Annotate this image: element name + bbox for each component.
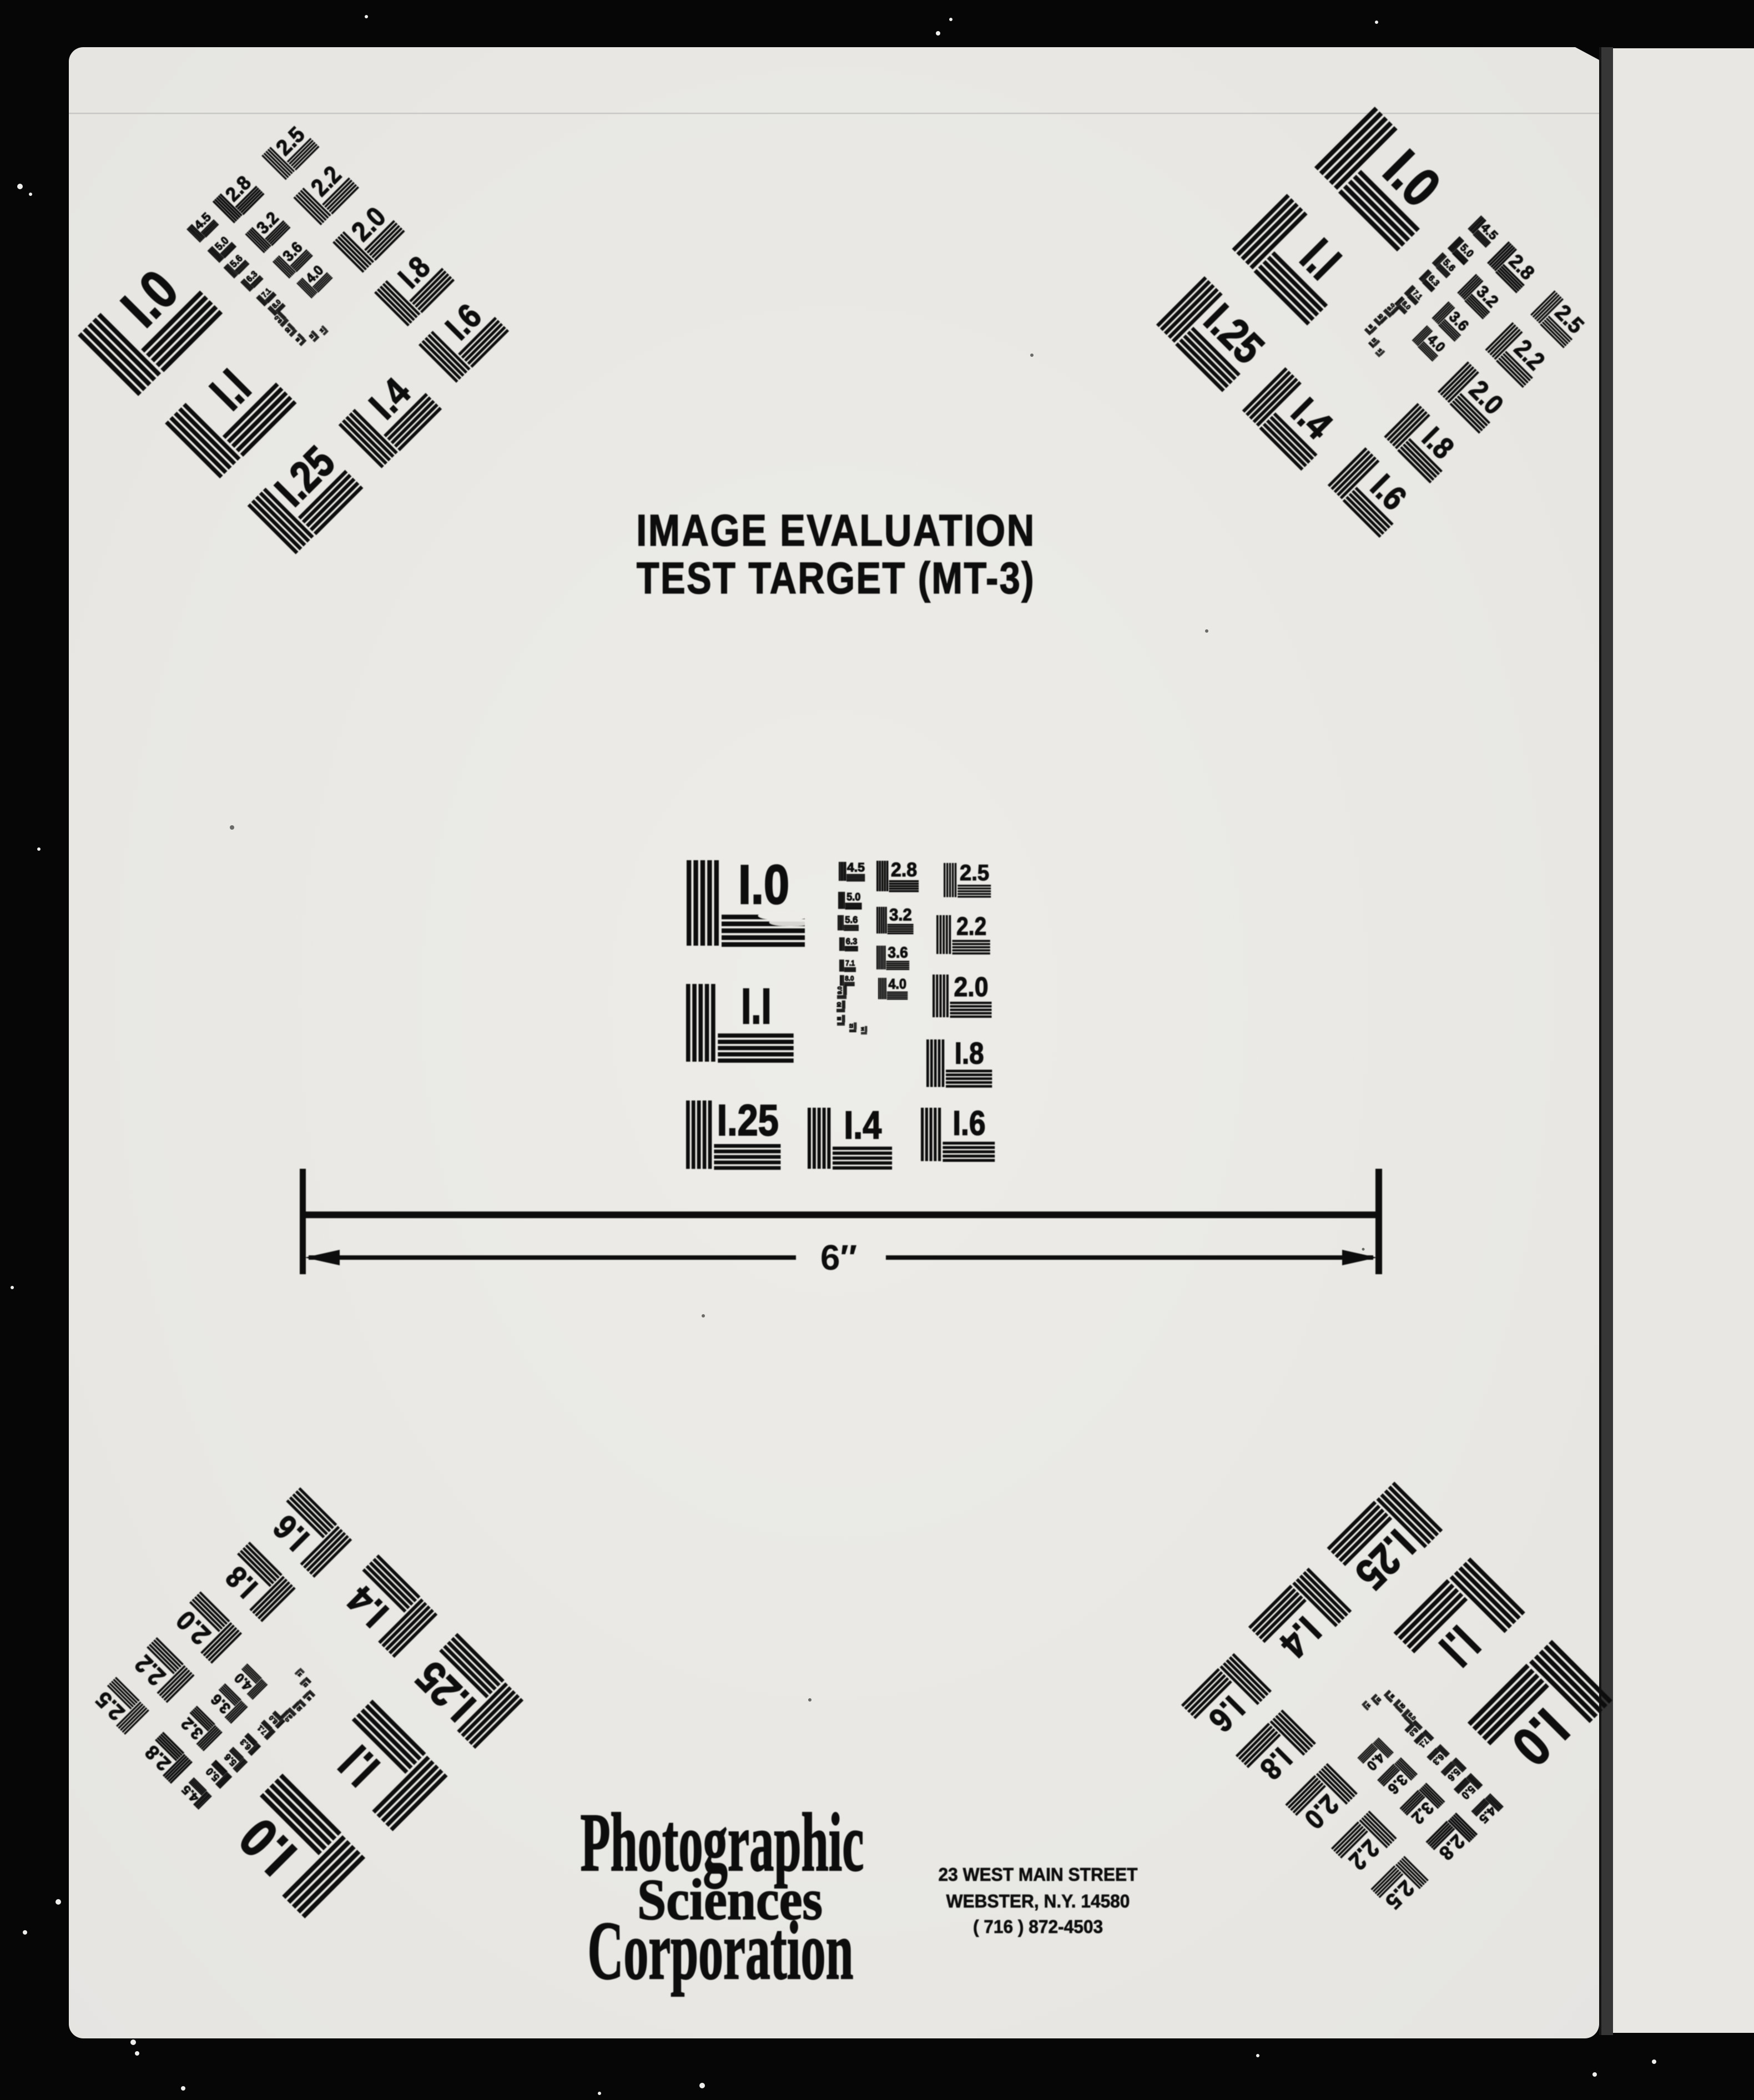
- svg-text:Corporation: Corporation: [588, 1905, 854, 1997]
- svg-text:23 WEST MAIN STREET: 23 WEST MAIN STREET: [939, 1864, 1138, 1885]
- svg-text:IMAGE EVALUATION: IMAGE EVALUATION: [636, 506, 1035, 555]
- svg-text:6″: 6″: [820, 1238, 857, 1278]
- svg-text:WEBSTER, N.Y. 14580: WEBSTER, N.Y. 14580: [946, 1891, 1130, 1911]
- svg-text:TEST TARGET (MT-3): TEST TARGET (MT-3): [637, 553, 1035, 603]
- svg-text:( 716 ) 872-4503: ( 716 ) 872-4503: [973, 1916, 1103, 1937]
